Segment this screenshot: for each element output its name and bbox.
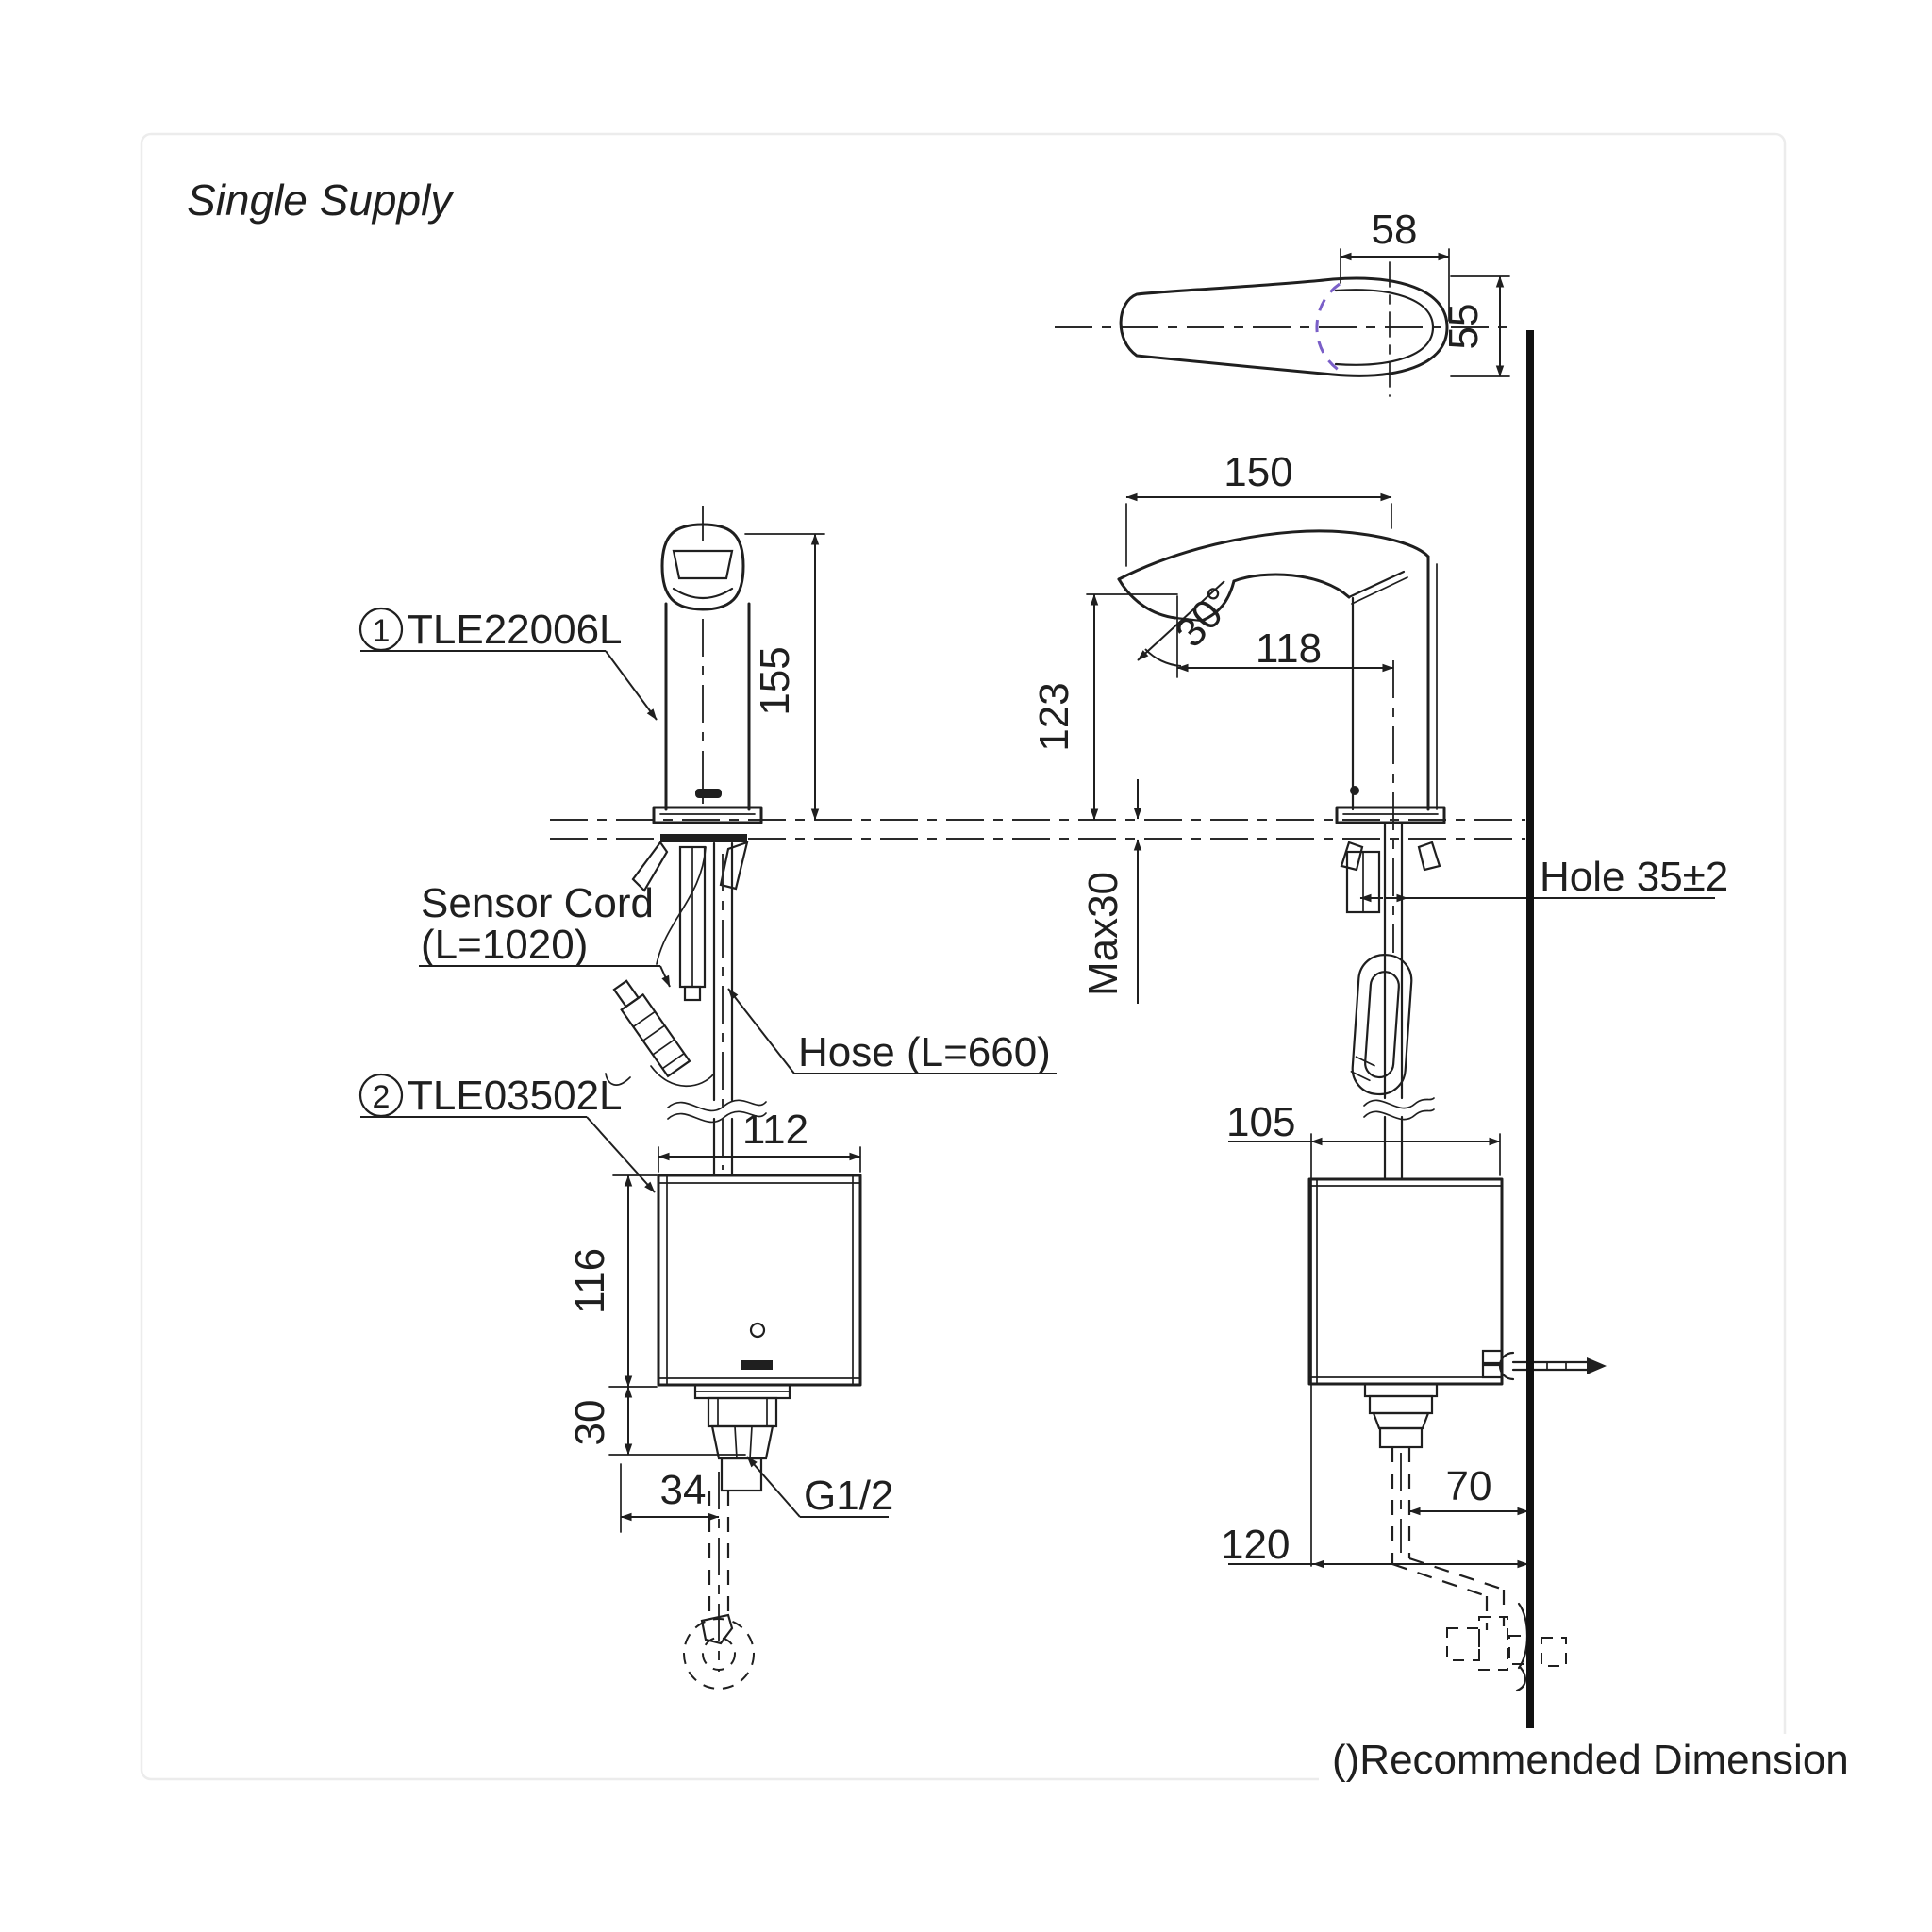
box-label-mark bbox=[741, 1360, 773, 1370]
sensor-eye-side bbox=[1350, 786, 1359, 795]
callout-hose: Hose (L=660) bbox=[728, 989, 1057, 1075]
page-title: Single Supply bbox=[187, 175, 455, 225]
sensor-cord-label-2: (L=1020) bbox=[421, 922, 588, 968]
dim-55-label: 55 bbox=[1441, 304, 1487, 350]
hole-label: Hole 35±2 bbox=[1540, 854, 1728, 900]
dim-outlet-offset: 34 bbox=[621, 1464, 719, 1532]
dim-handle-height: 55 bbox=[1441, 276, 1509, 376]
dim-123-label: 123 bbox=[1031, 682, 1077, 751]
dim-120-label: 120 bbox=[1221, 1522, 1290, 1568]
dim-155-label: 155 bbox=[752, 646, 798, 715]
dim-105-label: 105 bbox=[1226, 1099, 1295, 1145]
controller-box-side bbox=[1309, 1179, 1502, 1384]
dim-outlet-angle: 30° bbox=[1138, 578, 1243, 666]
indicator-led bbox=[751, 1324, 764, 1337]
dim-spout-height: 155 bbox=[745, 534, 824, 820]
dim-112-label: 112 bbox=[742, 1107, 808, 1153]
dim-30-label: 30 bbox=[567, 1400, 613, 1446]
spout-opening-inner bbox=[674, 551, 732, 578]
sensor-window bbox=[695, 789, 722, 798]
spout-top-curve bbox=[1119, 531, 1428, 579]
thread-label: G1/2 bbox=[804, 1473, 893, 1519]
dim-58-label: 58 bbox=[1372, 207, 1418, 253]
spout-nose-underside bbox=[1119, 579, 1175, 618]
dim-max30-label: Max30 bbox=[1080, 872, 1126, 996]
dim-116-label: 116 bbox=[567, 1248, 613, 1314]
dim-deck-thickness: Max30 bbox=[1080, 779, 1138, 1004]
dim-controller-width-front: 112 bbox=[658, 1107, 860, 1172]
content-frame bbox=[142, 134, 1785, 1779]
part2-code: TLE03502L bbox=[408, 1073, 623, 1119]
dim-150-label: 150 bbox=[1224, 449, 1292, 495]
callout-hole: Hole 35±2 bbox=[1360, 854, 1728, 900]
hose-label: Hose (L=660) bbox=[798, 1029, 1051, 1075]
footnote: ()Recommended Dimension bbox=[1332, 1737, 1849, 1783]
mount-tab-upper bbox=[1483, 1351, 1502, 1363]
dim-reach: 150 bbox=[1126, 449, 1391, 566]
front-view: 155 112 bbox=[360, 506, 1057, 1689]
dim-handle-width: 58 bbox=[1341, 207, 1449, 321]
technical-drawing: Single Supply 58 55 bbox=[0, 0, 1932, 1932]
outlet-fitting-front bbox=[684, 1385, 790, 1689]
dim-outlet-to-wall: 70 bbox=[1409, 1463, 1528, 1511]
dim-controller-height: 116 bbox=[567, 1175, 657, 1387]
dim-34-label: 34 bbox=[660, 1467, 707, 1513]
callout-part1: 1 TLE22006L bbox=[360, 607, 657, 720]
controller-box-front bbox=[658, 1175, 860, 1385]
drawing-page: Single Supply 58 55 bbox=[0, 0, 1932, 1932]
sensor-cord-label-1: Sensor Cord bbox=[421, 880, 654, 926]
spout-underside-curve bbox=[1234, 575, 1349, 597]
part1-code: TLE22006L bbox=[408, 607, 623, 653]
wall-anchor-screw bbox=[1500, 1353, 1607, 1379]
callout-part2: 2 TLE03502L bbox=[360, 1073, 655, 1192]
dim-tip-height: 123 bbox=[1031, 594, 1177, 820]
dim-118-label: 118 bbox=[1256, 625, 1322, 672]
spout-aerator-front bbox=[674, 589, 732, 598]
callout-thread: G1/2 bbox=[747, 1457, 893, 1519]
part2-index: 2 bbox=[373, 1079, 391, 1115]
dim-controller-to-wall: 120 bbox=[1221, 1522, 1528, 1568]
stop-valve-dashed bbox=[1447, 1604, 1566, 1690]
side-view: 150 123 30° 118 Max30 bbox=[1031, 449, 1728, 1690]
sensor-cord-coil bbox=[1350, 953, 1413, 1096]
top-view-spout: 58 55 bbox=[1055, 207, 1509, 396]
part1-index: 1 bbox=[373, 613, 391, 649]
callout-sensor-cord: Sensor Cord (L=1020) bbox=[419, 880, 670, 987]
dim-70-label: 70 bbox=[1446, 1463, 1492, 1509]
